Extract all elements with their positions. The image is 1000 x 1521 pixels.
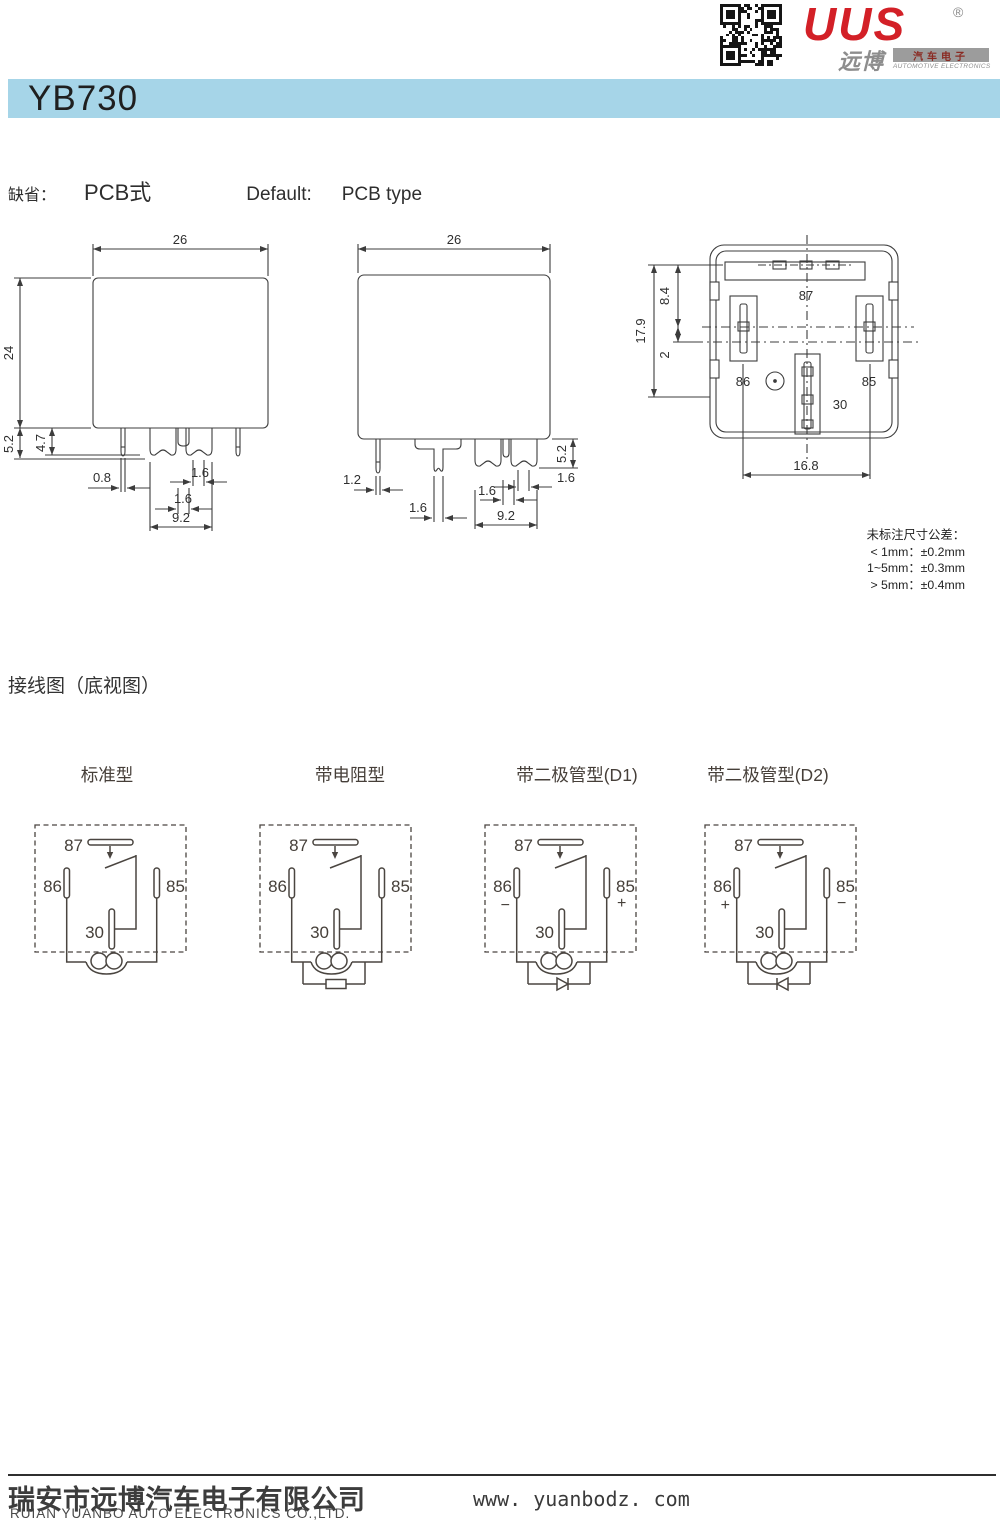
default-label-en: Default: <box>246 184 311 206</box>
dim-17.9: 17.9 <box>633 318 648 343</box>
tolerance-row: > 5mm：±0.4mm <box>833 577 965 594</box>
pin-85-bar <box>604 868 610 898</box>
model-number: YB730 <box>8 79 138 119</box>
brand-subtitle-bar: 汽车电子 <box>893 48 989 62</box>
default-type-line: 缺省： PCB式 Default: PCB type <box>8 175 708 207</box>
pin-86-slot <box>730 296 757 361</box>
pin-85-label: 85 <box>166 877 185 896</box>
pin-87-label: 87 <box>799 288 813 303</box>
dim-5.2: 5.2 <box>554 445 569 463</box>
dim-24: 24 <box>1 346 16 360</box>
blade-pin-mid <box>178 428 189 446</box>
footer-divider <box>8 1474 996 1476</box>
blade-pin-mid <box>503 439 509 457</box>
pin-30-label: 30 <box>85 923 104 942</box>
dim-1.6-upper: 1.6 <box>557 470 575 485</box>
blade-pin-b <box>511 439 537 466</box>
model-title-bar: YB730 <box>8 79 1000 118</box>
pin-87-bar <box>758 840 803 846</box>
side-view-drawing: 26 5.2 1.2 1.6 1.6 1.6 9.2 <box>330 232 630 552</box>
round-pin <box>376 439 380 473</box>
pin-85-slot <box>856 296 883 361</box>
blade-pin-a <box>475 439 501 466</box>
pin-85-bar <box>154 868 160 898</box>
dim-4.7: 4.7 <box>33 434 48 452</box>
default-label-cn: 缺省： <box>8 181 56 205</box>
dim-9.2: 9.2 <box>172 510 190 525</box>
pin-85-blade <box>866 304 873 353</box>
dim-9.2: 9.2 <box>497 508 515 523</box>
default-value-cn: PCB式 <box>84 175 151 207</box>
pin-85-label: 85 <box>862 374 876 389</box>
pin-30-bar <box>779 909 785 949</box>
wiring-section-title: 接线图（底视图） <box>8 671 160 698</box>
pin-85-label: 85 <box>616 877 635 896</box>
brand-logo-uus: UUS <box>803 0 906 48</box>
round-pin-left <box>121 428 125 456</box>
pin-85-label: 85 <box>391 877 410 896</box>
relay-body-front <box>93 278 268 428</box>
pin-87-bar <box>313 840 358 846</box>
polarity-85: − <box>837 895 846 912</box>
dim-5.2: 5.2 <box>1 435 16 453</box>
pin-30-bar <box>559 909 565 949</box>
dim-1.2: 1.2 <box>343 472 361 487</box>
pin-30-label: 30 <box>310 923 329 942</box>
resistor <box>326 980 346 989</box>
tolerance-row: 1~5mm：±0.3mm <box>833 560 965 577</box>
company-website: www. yuanbodz. com <box>473 1487 690 1511</box>
qr-code-icon <box>720 4 782 66</box>
circuit-title-diode-d1: 带二极管型(D1) <box>516 762 638 787</box>
pin-30-bar <box>109 909 115 949</box>
brand-logo-yuanbo: 远博 <box>838 44 884 76</box>
dim-1.6-lower: 1.6 <box>174 491 192 506</box>
dim-26: 26 <box>447 232 461 247</box>
pin-86-blade <box>740 304 747 353</box>
diode <box>557 978 568 990</box>
pin-87-label: 87 <box>64 836 83 855</box>
polarity-86: + <box>721 897 730 914</box>
pin-86-label: 86 <box>268 877 287 896</box>
dim-26: 26 <box>173 232 187 247</box>
relay-body-side <box>358 275 550 439</box>
bottom-view-drawing: 87 86 85 30 17.9 8.4 2 16.8 <box>630 232 970 492</box>
pin-87-label: 87 <box>514 836 533 855</box>
pin-87-bar <box>88 840 133 846</box>
circuit-standard: 87 86 85 30 <box>20 812 220 1002</box>
pin-30-label: 30 <box>755 923 774 942</box>
dim-1.6-mid: 1.6 <box>409 500 427 515</box>
circuit-diode-d2: 87 86 85 30 + − <box>690 812 890 1002</box>
circuit-resistor: 87 86 85 30 <box>245 812 445 1002</box>
pin-85-bar <box>379 868 385 898</box>
arrow-icon <box>107 852 113 859</box>
pin-87-bar <box>538 840 583 846</box>
round-pin-right <box>236 428 240 456</box>
dim-16.8: 16.8 <box>793 458 818 473</box>
circuit-title-standard: 标准型 <box>81 762 134 787</box>
pin-86-bar <box>289 868 295 898</box>
circuit-diode-d1: 87 86 85 30 − + <box>470 812 670 1002</box>
pin-86-bar <box>734 868 740 898</box>
pin-87-label: 87 <box>734 836 753 855</box>
circuit-title-resistor: 带电阻型 <box>315 762 385 787</box>
arrow-icon <box>777 852 783 859</box>
arrow-icon <box>557 852 563 859</box>
dim-2: 2 <box>657 351 672 358</box>
registered-trademark-icon: ® <box>953 4 963 20</box>
center-blade-pin <box>415 439 461 471</box>
datasheet-page: UUS ® 远博 汽车电子 AUTOMOTIVE ELECTRONICS YB7… <box>0 0 1000 1521</box>
pin-85-bar <box>824 868 830 898</box>
company-name-en: RUIAN YUANBO AUTO ELECTRONICS CO.,LTD. <box>10 1506 350 1521</box>
pin-30-bar <box>334 909 340 949</box>
front-view-drawing: 26 24 5.2 4.7 0.8 1.6 1.6 9.2 <box>0 232 320 552</box>
pin-30-label: 30 <box>535 923 554 942</box>
pin-30-label: 30 <box>833 397 847 412</box>
pin-86-label: 86 <box>713 877 732 896</box>
polarity-85: + <box>617 895 626 912</box>
dim-0.8: 0.8 <box>93 470 111 485</box>
brand-subtitle-en: AUTOMOTIVE ELECTRONICS <box>893 63 989 70</box>
blade-pin-a <box>150 428 176 455</box>
pin-87-label: 87 <box>289 836 308 855</box>
tolerance-title: 未标注尺寸公差： <box>833 527 965 544</box>
pin-86-label: 86 <box>493 877 512 896</box>
dim-1.6-upper: 1.6 <box>191 465 209 480</box>
pin-86-bar <box>64 868 70 898</box>
blade-pin-b <box>186 428 212 455</box>
pin-86-label: 86 <box>736 374 750 389</box>
arrow-icon <box>332 852 338 859</box>
brand-subtitle-cn: 汽车电子 <box>913 48 969 63</box>
tolerance-note: 未标注尺寸公差： < 1mm：±0.2mm 1~5mm：±0.3mm > 5mm… <box>833 527 965 593</box>
diode-reversed <box>777 978 788 990</box>
circuit-title-diode-d2: 带二极管型(D2) <box>707 762 829 787</box>
polarity-86: − <box>501 897 510 914</box>
pin-85-label: 85 <box>836 877 855 896</box>
dim-1.6-lower: 1.6 <box>478 483 496 498</box>
pin-86-bar <box>514 868 520 898</box>
pin-86-label: 86 <box>43 877 62 896</box>
default-value-en: PCB type <box>342 184 422 206</box>
tolerance-row: < 1mm：±0.2mm <box>833 544 965 561</box>
dim-8.4: 8.4 <box>657 287 672 305</box>
